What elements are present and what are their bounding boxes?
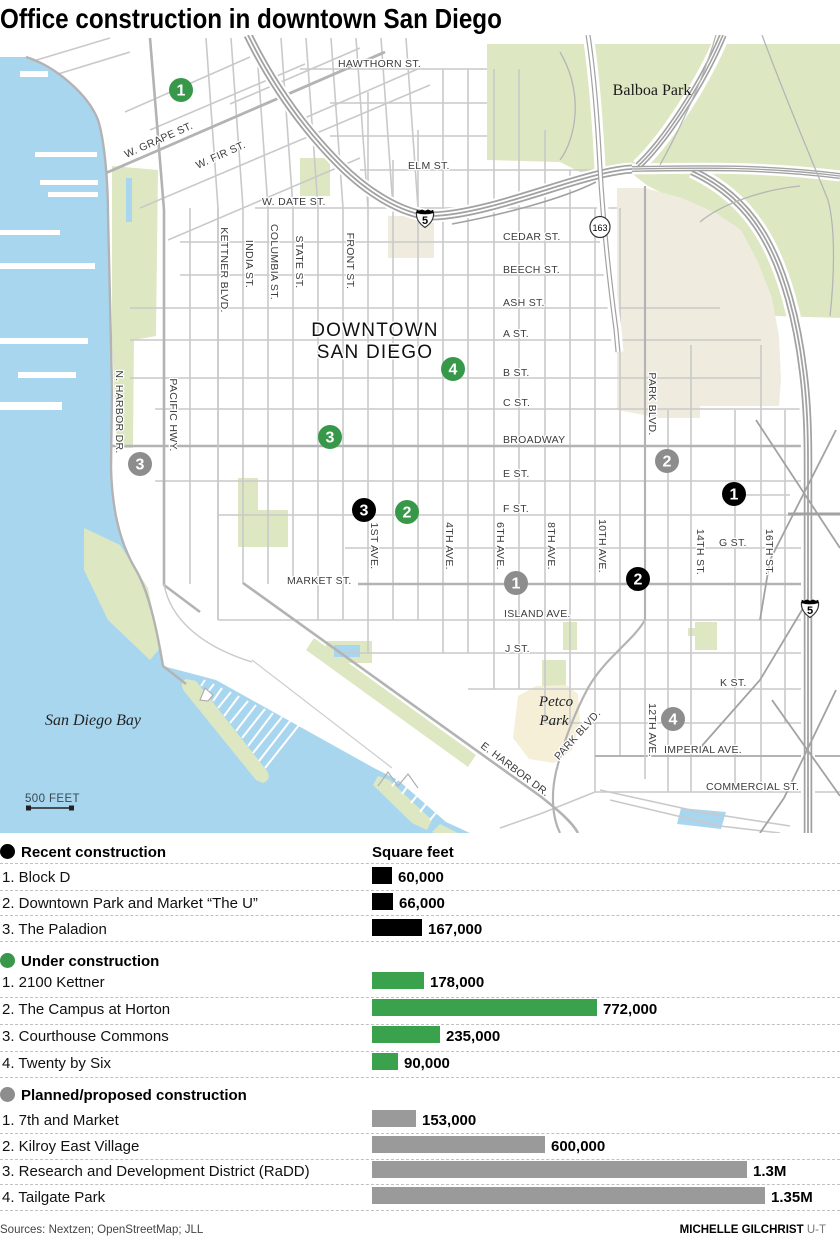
svg-text:ISLAND AVE.: ISLAND AVE. [504,608,571,620]
svg-text:HAWTHORN ST.: HAWTHORN ST. [338,58,421,70]
svg-text:3: 3 [326,430,335,447]
svg-text:K ST.: K ST. [720,677,747,689]
svg-text:B ST.: B ST. [503,367,530,379]
svg-text:F ST.: F ST. [503,503,529,515]
svg-text:G ST.: G ST. [719,537,747,549]
svg-text:1: 1 [512,576,521,593]
svg-text:W. DATE ST.: W. DATE ST. [262,196,326,208]
svg-text:BROADWAY: BROADWAY [503,434,566,446]
svg-text:PACIFIC HWY.: PACIFIC HWY. [167,378,179,451]
svg-text:4: 4 [449,362,458,379]
svg-text:3: 3 [136,457,145,474]
svg-text:1: 1 [730,487,739,504]
svg-text:2: 2 [403,505,412,522]
svg-text:J ST.: J ST. [505,643,530,655]
svg-text:5: 5 [422,215,428,227]
svg-text:A ST.: A ST. [503,328,529,340]
svg-text:4TH AVE.: 4TH AVE. [443,522,455,570]
svg-text:12TH AVE.: 12TH AVE. [646,703,658,757]
svg-text:MARKET ST.: MARKET ST. [287,575,352,587]
svg-text:Petco: Petco [538,694,574,710]
svg-text:BEECH ST.: BEECH ST. [503,264,560,276]
svg-text:DOWNTOWN: DOWNTOWN [311,320,438,341]
svg-text:PARK BLVD.: PARK BLVD. [646,372,658,435]
svg-text:163: 163 [592,223,607,233]
svg-text:INDIA ST.: INDIA ST. [243,240,255,288]
svg-text:STATE ST.: STATE ST. [293,235,305,288]
svg-text:8TH AVE.: 8TH AVE. [545,522,557,570]
svg-text:CEDAR ST.: CEDAR ST. [503,231,561,243]
svg-text:KETTNER BLVD.: KETTNER BLVD. [218,227,230,312]
svg-text:ASH ST.: ASH ST. [503,297,545,309]
svg-text:6TH AVE.: 6TH AVE. [494,522,506,570]
svg-text:2: 2 [634,572,643,589]
svg-text:ELM ST.: ELM ST. [408,160,450,172]
svg-text:3: 3 [360,503,369,520]
svg-text:Balboa Park: Balboa Park [613,82,692,99]
svg-text:1ST AVE.: 1ST AVE. [368,523,380,570]
svg-text:IMPERIAL AVE.: IMPERIAL AVE. [664,744,742,756]
svg-text:SAN DIEGO: SAN DIEGO [317,342,433,363]
svg-text:2: 2 [663,454,672,471]
svg-text:N. HARBOR DR.: N. HARBOR DR. [113,370,125,453]
svg-text:1: 1 [177,83,186,100]
svg-text:FRONT ST.: FRONT ST. [344,233,356,290]
svg-text:10TH AVE.: 10TH AVE. [596,519,608,573]
svg-text:E ST.: E ST. [503,468,530,480]
svg-text:4: 4 [669,712,678,729]
svg-text:San Diego Bay: San Diego Bay [45,712,142,729]
svg-text:5: 5 [807,605,813,617]
svg-text:COLUMBIA ST.: COLUMBIA ST. [268,224,280,300]
svg-text:Park: Park [538,713,569,729]
svg-text:500 FEET: 500 FEET [25,793,80,805]
svg-text:C ST.: C ST. [503,397,530,409]
svg-text:COMMERCIAL ST.: COMMERCIAL ST. [706,781,799,793]
svg-text:14TH ST.: 14TH ST. [694,529,706,575]
svg-text:16TH ST.: 16TH ST. [763,529,775,575]
